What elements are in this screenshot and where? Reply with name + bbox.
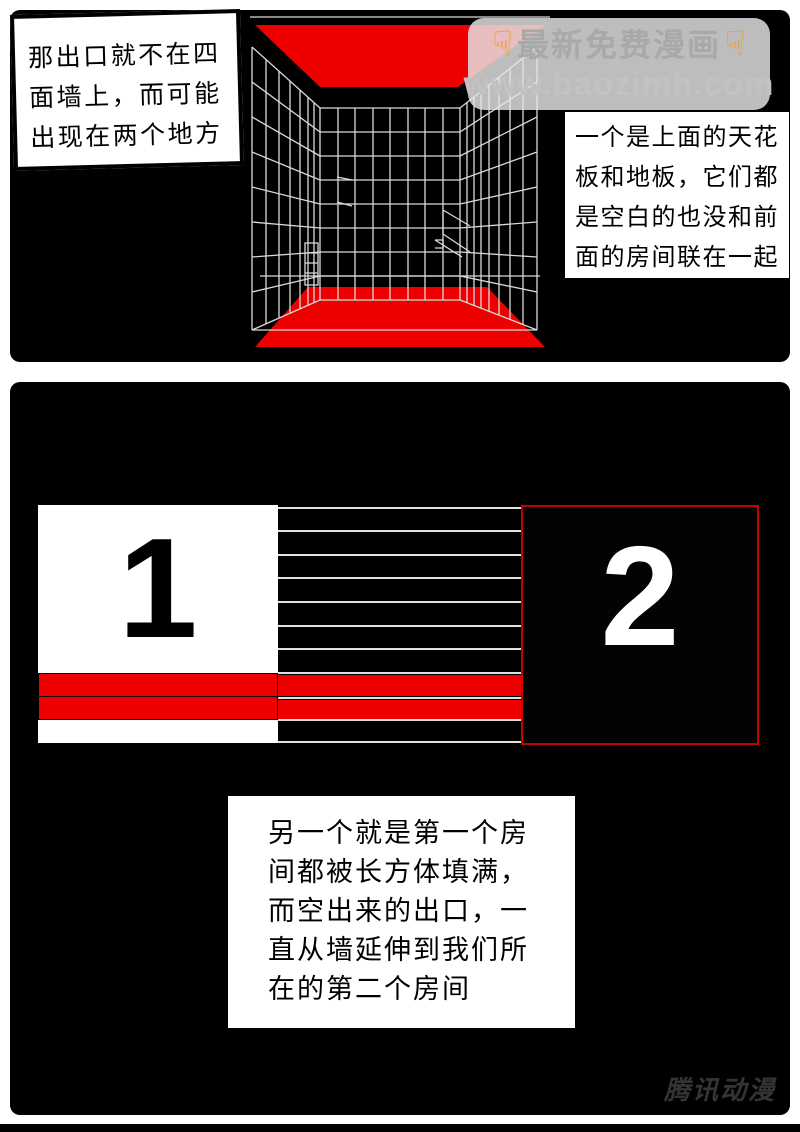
caption-box-ceiling-floor: 一个是上面的天花 板和地板，它们都 是空白的也没和前 面的房间联在一起 [565,112,789,278]
room1-box: 1 [38,505,278,743]
finger-down-icon: ☟ [492,25,513,64]
explanation-textbox: 另一个就是第一个房 间都被长方体填满， 而空出来的出口，一 直从墙延伸到我们所 … [228,796,575,1028]
explanation-line: 直从墙延伸到我们所 [268,931,535,970]
explanation-line: 另一个就是第一个房 [268,814,535,853]
watermark-title-row: ☟ 最新免费漫画 ☟ [492,25,745,64]
room1-exit-band [38,673,278,720]
finger-down-icon: ☟ [725,25,746,64]
publisher-watermark: 腾讯动漫 [664,1070,776,1107]
room2-label: 2 [523,507,757,687]
connector-exit-band-top [278,675,521,696]
connector-exit-band-bottom [278,700,521,719]
speech-bubble-line: 那出口就不在四 [28,33,225,78]
panel-top: ☟ 最新免费漫画 ☟ www.baozimh.com 那出口就不在四 面墙上，而… [10,10,790,362]
explanation-line: 间都被长方体填满， [268,853,535,892]
caption-line: 板和地板，它们都 [575,158,779,198]
caption-line: 一个是上面的天花 [575,118,779,158]
room1-label: 1 [38,505,278,673]
caption-line: 面的房间联在一起 [575,238,779,278]
watermark-title: 最新免费漫画 [517,27,721,64]
site-watermark: ☟ 最新免费漫画 ☟ www.baozimh.com [468,18,770,110]
speech-bubble-line: 面墙上，而可能 [29,73,226,118]
bottom-edge-bar [0,1124,800,1132]
speech-bubble: 那出口就不在四 面墙上，而可能 出现在两个地方 [10,9,244,171]
panel-bottom: 1 2 另一个就是第一个房 间都被长方体填满， 而空出来的出口，一 直从墙延伸到… [10,382,790,1115]
floor-red-surface [255,287,545,347]
speech-bubble-line: 出现在两个地方 [30,113,227,158]
room2-box: 2 [521,505,759,745]
rooms-connector-slabs [278,505,521,745]
watermark-url: www.baozimh.com [464,65,775,103]
explanation-line: 而空出来的出口，一 [268,892,535,931]
explanation-line: 在的第二个房间 [268,970,535,1009]
exit-band-divider [39,696,277,697]
caption-line: 是空白的也没和前 [575,198,779,238]
